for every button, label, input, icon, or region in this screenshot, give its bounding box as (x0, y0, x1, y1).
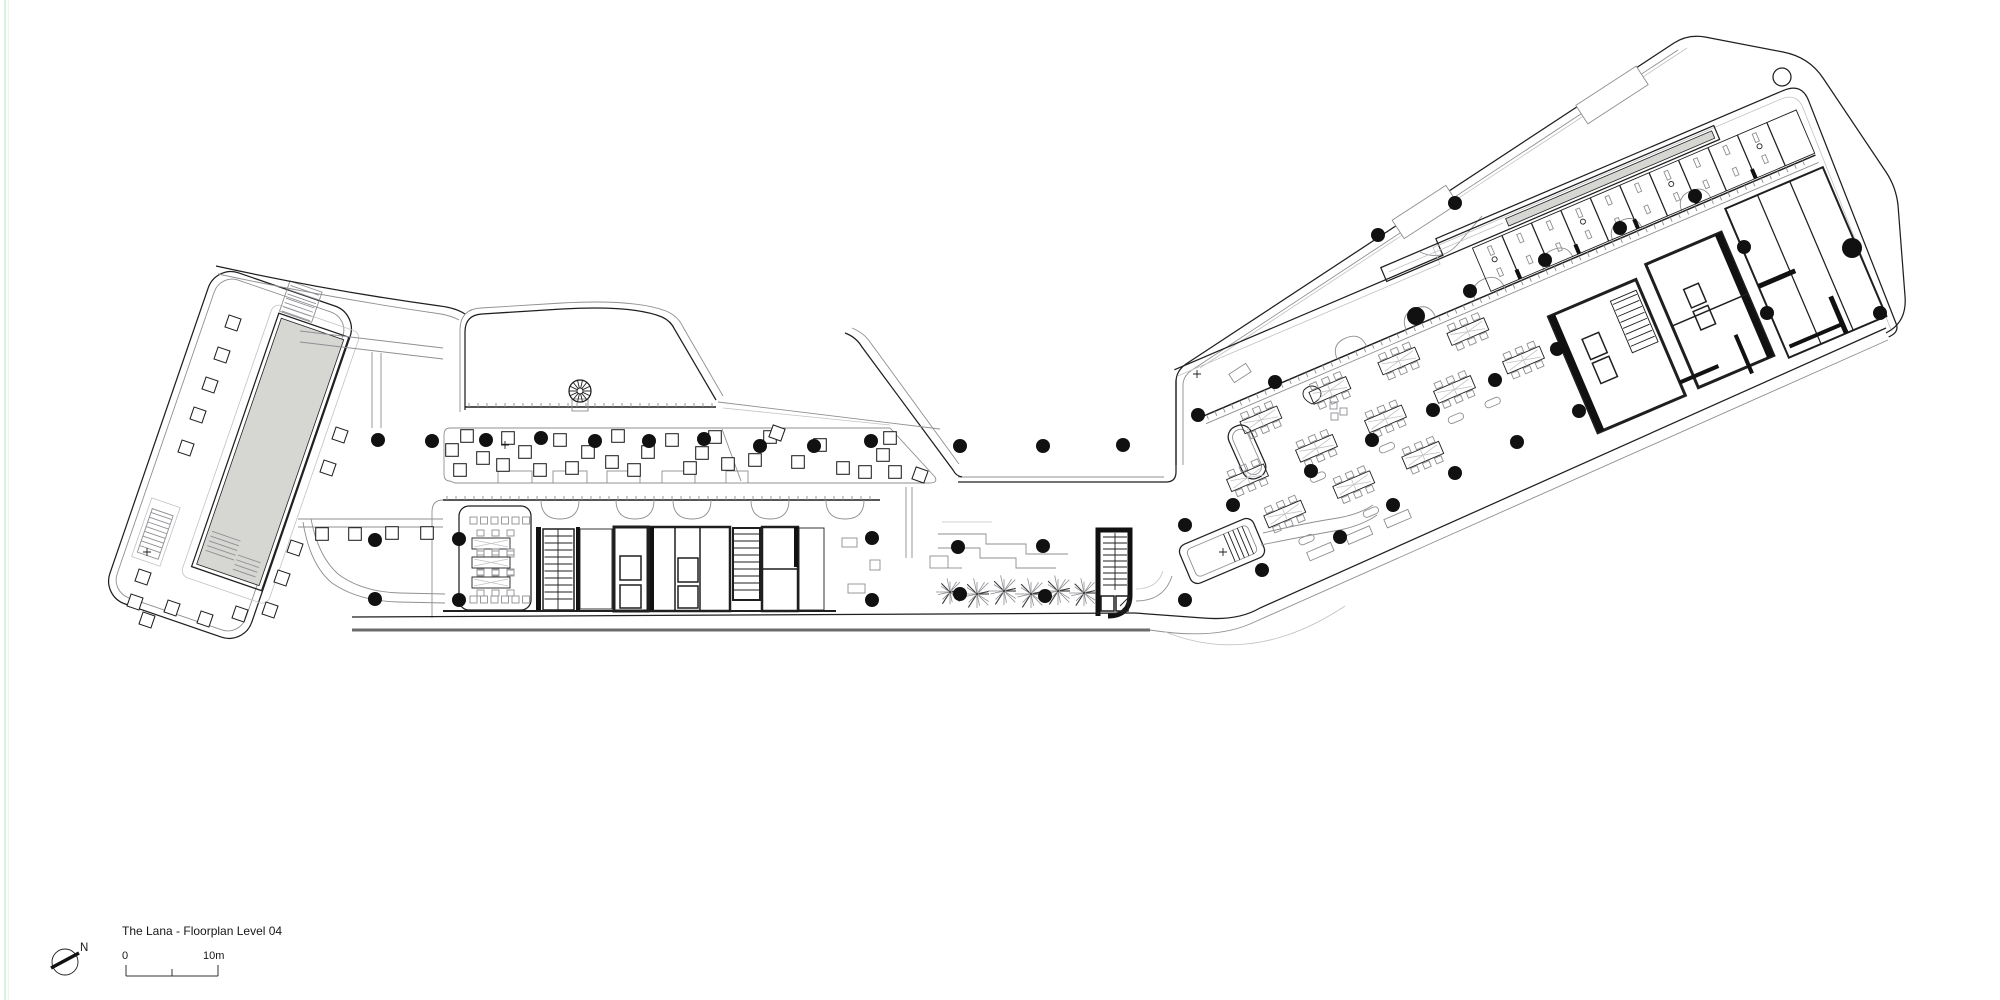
mullion-tick (1596, 249, 1598, 254)
mullion-tick (1372, 344, 1374, 349)
mullion-tick (1538, 274, 1540, 279)
planter-square (454, 464, 467, 477)
mullion-tick (1438, 316, 1440, 321)
table-group (1224, 457, 1271, 498)
fixture (1605, 195, 1612, 205)
mullion-tick (1546, 270, 1548, 275)
table-group (1293, 428, 1340, 469)
mullion-tick (1712, 199, 1714, 204)
planter-square (519, 446, 532, 459)
chair (477, 530, 484, 536)
column-dot (865, 593, 879, 607)
column-dot (588, 434, 602, 448)
planter-square (274, 570, 290, 586)
planter-square (696, 447, 709, 460)
planter-square (202, 377, 218, 393)
planter-square (497, 459, 510, 472)
fixture (1723, 145, 1730, 155)
column-dot (953, 439, 967, 453)
stair-core (1098, 530, 1132, 616)
door-arc (673, 500, 711, 519)
floor-plan-canvas: N The Lana - Floorplan Level 04 0 10m (0, 0, 2000, 1000)
plan-title: The Lana - Floorplan Level 04 (122, 924, 282, 938)
planter-square (837, 462, 850, 475)
planter-square (262, 602, 278, 618)
right-wing-interior (1167, 83, 1906, 600)
mullion-tick (1455, 309, 1457, 314)
planter-square (884, 432, 897, 445)
mullion-tick (1480, 298, 1482, 303)
mullion-tick (1563, 263, 1565, 268)
table-group (1431, 369, 1478, 410)
column-dot (1255, 563, 1269, 577)
scale-bar: 0 10m (122, 950, 224, 976)
mullion-tick (1769, 175, 1771, 180)
table-group (1362, 399, 1409, 440)
mullion-tick (1207, 415, 1209, 420)
door-arcs (541, 500, 864, 519)
column-dot (1178, 593, 1192, 607)
table-group (1237, 400, 1284, 441)
plaza (718, 328, 1377, 601)
table-group (1375, 341, 1422, 382)
planter-square (332, 427, 348, 443)
planter-square (386, 527, 399, 540)
mullion-tick (1339, 358, 1341, 363)
mullion-tick (1471, 302, 1473, 307)
planter-square (877, 449, 890, 462)
rug (1484, 396, 1501, 409)
mullion-tick (1778, 171, 1780, 176)
mullion-tick (1505, 288, 1507, 293)
stair-a (543, 529, 574, 610)
planter-square (912, 467, 928, 483)
planter-square (612, 430, 625, 443)
mullion-tick (1554, 266, 1556, 271)
north-arrow: N (51, 942, 88, 975)
chair (507, 590, 514, 596)
planter-square (164, 600, 180, 616)
mullion-tick (1314, 369, 1316, 374)
planter-square (792, 456, 805, 469)
column-dot (1463, 284, 1477, 298)
planter-square (214, 347, 230, 363)
wing-core-3 (1725, 167, 1886, 358)
palm-tree (1069, 578, 1095, 606)
mullion-tick (1670, 217, 1672, 222)
column-dot (1226, 498, 1240, 512)
mullion-tick (1256, 394, 1258, 399)
planter-square (349, 528, 362, 541)
column-dot (1688, 189, 1702, 203)
column-dot (951, 540, 965, 554)
mullion-tick (1803, 161, 1805, 166)
lounge-room (459, 506, 531, 610)
column-dot (371, 433, 385, 447)
rug (1362, 506, 1379, 519)
mullion-tick (1720, 196, 1722, 201)
chair (492, 530, 499, 536)
door-arc (616, 500, 654, 519)
planter-square (582, 446, 595, 459)
mullion-tick (1231, 404, 1233, 409)
chair (492, 549, 499, 555)
door-arc (826, 500, 864, 519)
mullion-tick (1612, 242, 1614, 247)
column-dot (753, 439, 767, 453)
planter-square (320, 460, 336, 476)
column-dot (1191, 408, 1205, 422)
palm-tree (988, 575, 1016, 605)
fixture (1644, 205, 1651, 214)
sofa (1345, 526, 1372, 544)
column-dot (1407, 307, 1425, 325)
mullion-tick (1215, 411, 1217, 416)
floorplan-sheet: N The Lana - Floorplan Level 04 0 10m (0, 0, 2000, 1000)
mullion-tick (1364, 348, 1366, 353)
mullion-tick (1753, 182, 1755, 187)
column-dot (864, 434, 878, 448)
planter-square (534, 464, 547, 477)
planter-square (477, 452, 490, 465)
mullion-tick (1389, 337, 1391, 342)
mullion-tick (1794, 164, 1796, 169)
mullion-tick (1223, 408, 1225, 413)
stair-b (733, 528, 760, 600)
mullion-tick (1422, 323, 1424, 328)
door-arc (541, 500, 579, 519)
column-dot (452, 532, 466, 546)
mullion-tick (1687, 210, 1689, 215)
mullion-tick (1240, 401, 1242, 406)
fixture (1752, 133, 1759, 143)
right-wing-outer (1176, 36, 1905, 465)
mullion-tick (1331, 362, 1333, 367)
planter-square (190, 407, 206, 423)
mullion-tick (1728, 192, 1730, 197)
terrace-neck-outer (216, 266, 465, 314)
rug (1298, 533, 1315, 546)
planter-square (178, 440, 194, 456)
column-dot (1572, 404, 1586, 418)
door-arc (751, 500, 789, 519)
planter-square (421, 527, 434, 540)
planter-square (889, 466, 902, 479)
fixture (1585, 230, 1592, 239)
mullion-tick (1521, 281, 1523, 286)
fixture (1634, 183, 1641, 193)
fixture (1497, 268, 1504, 277)
sofa (1307, 542, 1334, 560)
chair (492, 590, 499, 596)
mullion-tick (1488, 295, 1490, 300)
mullion-tick (1447, 312, 1449, 317)
planter-square (859, 466, 872, 479)
column-dot (1178, 518, 1192, 532)
fixture (1762, 155, 1769, 164)
planter-square (554, 434, 567, 447)
column-dot (697, 432, 711, 446)
mullion-tick (1761, 178, 1763, 183)
table-group (1444, 311, 1491, 352)
mullion-tick (1736, 189, 1738, 194)
mullion-tick (1463, 305, 1465, 310)
column-dot (1268, 375, 1282, 389)
mullion-tick (1298, 376, 1300, 381)
mullion-tick (1264, 390, 1266, 395)
mullion-tick (1513, 284, 1515, 289)
fixture (1673, 192, 1680, 201)
planter-square (446, 444, 459, 457)
mullion-tick (1289, 379, 1291, 384)
mullion-tick (1587, 252, 1589, 257)
column-dot (1873, 306, 1887, 320)
column-dot (1737, 240, 1751, 254)
column-dot (642, 434, 656, 448)
column-dot (1038, 589, 1052, 603)
fixture (1517, 233, 1524, 243)
fixture (1732, 167, 1739, 176)
mullion-tick (1695, 206, 1697, 211)
column-dot (1550, 342, 1564, 356)
column-dot (1116, 438, 1130, 452)
column-dot (1842, 238, 1862, 258)
mullion-tick (1347, 355, 1349, 360)
planter-square (135, 569, 151, 585)
survey-mark (1193, 370, 1201, 378)
planter-square (225, 315, 241, 331)
pod-partition (1767, 123, 1785, 166)
chair (492, 551, 499, 557)
fixture (1693, 158, 1700, 168)
scale-end-label: 10m (203, 950, 224, 962)
planter-square (722, 458, 735, 471)
chair (507, 551, 514, 557)
chair (477, 590, 484, 596)
column-dot (807, 439, 821, 453)
fixture (1703, 180, 1710, 189)
planter-square (628, 464, 641, 477)
mullion-tick (1248, 397, 1250, 402)
mullion-tick (1414, 327, 1416, 332)
door-arc (1331, 332, 1367, 359)
planter-square (139, 612, 155, 628)
wc-fixture (1668, 181, 1675, 188)
mullion-tick (1786, 168, 1788, 173)
column-dot (865, 531, 879, 545)
column-dot (1333, 530, 1347, 544)
column-dot (1036, 439, 1050, 453)
elevator-core-b (650, 527, 730, 611)
mullion-tick (1678, 214, 1680, 219)
column-dot (1304, 464, 1318, 478)
rug (1378, 441, 1395, 454)
pond (1225, 422, 1270, 483)
rug (1447, 412, 1464, 425)
planter-square (666, 434, 679, 447)
planter-square (316, 528, 329, 541)
mullion-tick (1703, 203, 1705, 208)
mullion-tick (1637, 231, 1639, 236)
column-dot (534, 431, 548, 445)
fixture (1526, 255, 1533, 264)
left-wing (102, 257, 369, 648)
mullion-tick (1405, 330, 1407, 335)
fixture (1664, 170, 1671, 180)
main-band (432, 487, 962, 618)
mullion-tick (1620, 238, 1622, 243)
chair (507, 549, 514, 555)
planter-square (287, 540, 303, 556)
fixture (1487, 246, 1494, 256)
table-group (1500, 340, 1547, 381)
planter-square (566, 462, 579, 475)
sofa (1384, 509, 1411, 527)
mullion-tick (1430, 319, 1432, 324)
planter-square (127, 594, 143, 610)
mullion-tick (1579, 256, 1581, 261)
fixture (1576, 208, 1583, 218)
column-dot (1510, 435, 1524, 449)
fixture (1556, 243, 1563, 252)
mullion-tick (1571, 259, 1573, 264)
wc-fixture (1580, 218, 1587, 225)
planter-square (197, 611, 213, 627)
scale-zero-label: 0 (122, 950, 128, 962)
column-dot (1538, 253, 1552, 267)
chair (477, 551, 484, 557)
fixture (1546, 221, 1553, 231)
mullion-tick (1356, 351, 1358, 356)
column-dot (1760, 306, 1774, 320)
column-dot (1426, 403, 1440, 417)
mullion-tick (1397, 334, 1399, 339)
mullion-tick (1604, 245, 1606, 250)
column-dot (1448, 196, 1462, 210)
elevator-core-a (614, 527, 648, 611)
mullion-tick (1745, 185, 1747, 190)
stair-left (137, 509, 173, 560)
mullion-tick (1306, 372, 1308, 377)
planter-square (461, 430, 474, 443)
north-label: N (80, 942, 88, 954)
mullion-tick (1645, 228, 1647, 233)
planter-square (606, 456, 619, 469)
survey-mark (1219, 548, 1227, 556)
column-dot (1036, 539, 1050, 553)
planter-square (684, 462, 697, 475)
chair (507, 530, 514, 536)
column-dot (452, 593, 466, 607)
pod-partition (1708, 148, 1726, 191)
table-group (1330, 464, 1377, 505)
mullion-tick (1496, 291, 1498, 296)
wc-fixture (1491, 256, 1498, 263)
roof-drain-circle (1773, 68, 1791, 86)
column-dot (1371, 228, 1385, 242)
column-dot (425, 434, 439, 448)
mullion-tick (1380, 341, 1382, 346)
column-dot (1365, 433, 1379, 447)
mullion-tick (1629, 235, 1631, 240)
chair (477, 549, 484, 555)
mullion-tick (1322, 365, 1324, 370)
mullion-tick (1529, 277, 1531, 282)
planter-square (749, 454, 762, 467)
column-dot (1386, 498, 1400, 512)
column-dot (479, 433, 493, 447)
pod-partition (1590, 198, 1608, 241)
mullion-tick (1662, 221, 1664, 226)
mullion-tick (1654, 224, 1656, 229)
column-dot (1488, 373, 1502, 387)
planter-square (502, 432, 515, 445)
wc-fixture (1756, 143, 1763, 150)
column-dot (953, 587, 967, 601)
column-dot (368, 533, 382, 547)
column-dot (1448, 466, 1462, 480)
table-group (1399, 435, 1446, 476)
column-dot (368, 592, 382, 606)
pod-partition (1649, 173, 1667, 216)
column-dot (1613, 221, 1627, 235)
